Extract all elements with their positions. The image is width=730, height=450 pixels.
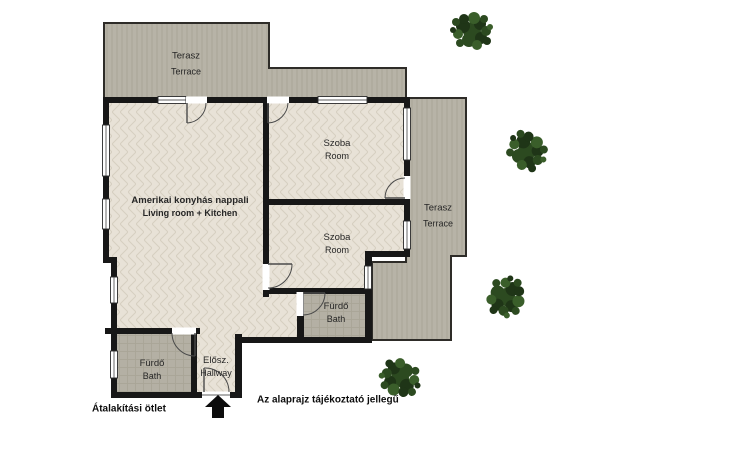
room-name-hu: Terasz xyxy=(423,202,453,215)
tree-icon xyxy=(498,122,555,179)
floor-plan: Terasz Terrace Amerikai konyhás nappali … xyxy=(0,0,730,450)
window-icon xyxy=(365,266,372,289)
room-name-hu: Elősz. xyxy=(200,354,232,367)
label-hallway: Elősz. Hallway xyxy=(200,354,232,380)
room-name-hu: Fürdő xyxy=(140,357,165,370)
room-name-hu: Terasz xyxy=(171,50,201,63)
caption-disclaimer: Az alaprajz tájékoztató jellegű xyxy=(257,395,399,406)
room-name-en: Terrace xyxy=(423,218,453,231)
tree-icon xyxy=(450,12,493,50)
window-icon xyxy=(103,125,110,176)
room-name-en: Room xyxy=(324,244,351,257)
label-living-room: Amerikai konyhás nappali Living room + K… xyxy=(131,194,248,220)
label-bath-1: Fürdő Bath xyxy=(140,357,165,383)
room-name-hu: Szoba xyxy=(324,231,351,244)
window-icon xyxy=(318,97,367,104)
window-icon xyxy=(111,277,118,303)
room-name-en: Hallway xyxy=(200,367,232,380)
window-icon xyxy=(158,97,186,104)
caption-idea: Átalakítási ötlet xyxy=(92,404,166,415)
window-icon xyxy=(404,108,411,160)
label-bath-2: Fürdő Bath xyxy=(324,300,349,326)
room-name-en: Room xyxy=(324,150,351,163)
room-name-hu: Fürdő xyxy=(324,300,349,313)
tree-icon xyxy=(484,272,529,321)
room-name-hu: Szoba xyxy=(324,137,351,150)
floor-plan-drawing xyxy=(0,0,730,450)
room-name-en: Bath xyxy=(324,313,349,326)
window-icon xyxy=(111,351,118,378)
room-name-en: Terrace xyxy=(171,66,201,79)
window-icon xyxy=(404,221,411,249)
room-name-en: Bath xyxy=(140,370,165,383)
label-room-1: Szoba Room xyxy=(324,137,351,163)
room-name-hu: Amerikai konyhás nappali xyxy=(131,194,248,207)
label-terrace-right: Terasz Terrace xyxy=(423,202,453,231)
label-room-2: Szoba Room xyxy=(324,231,351,257)
window-icon xyxy=(103,199,110,229)
room-name-en: Living room + Kitchen xyxy=(131,207,248,220)
top-terrace-area xyxy=(104,23,406,101)
label-terrace-top: Terasz Terrace xyxy=(171,50,201,79)
